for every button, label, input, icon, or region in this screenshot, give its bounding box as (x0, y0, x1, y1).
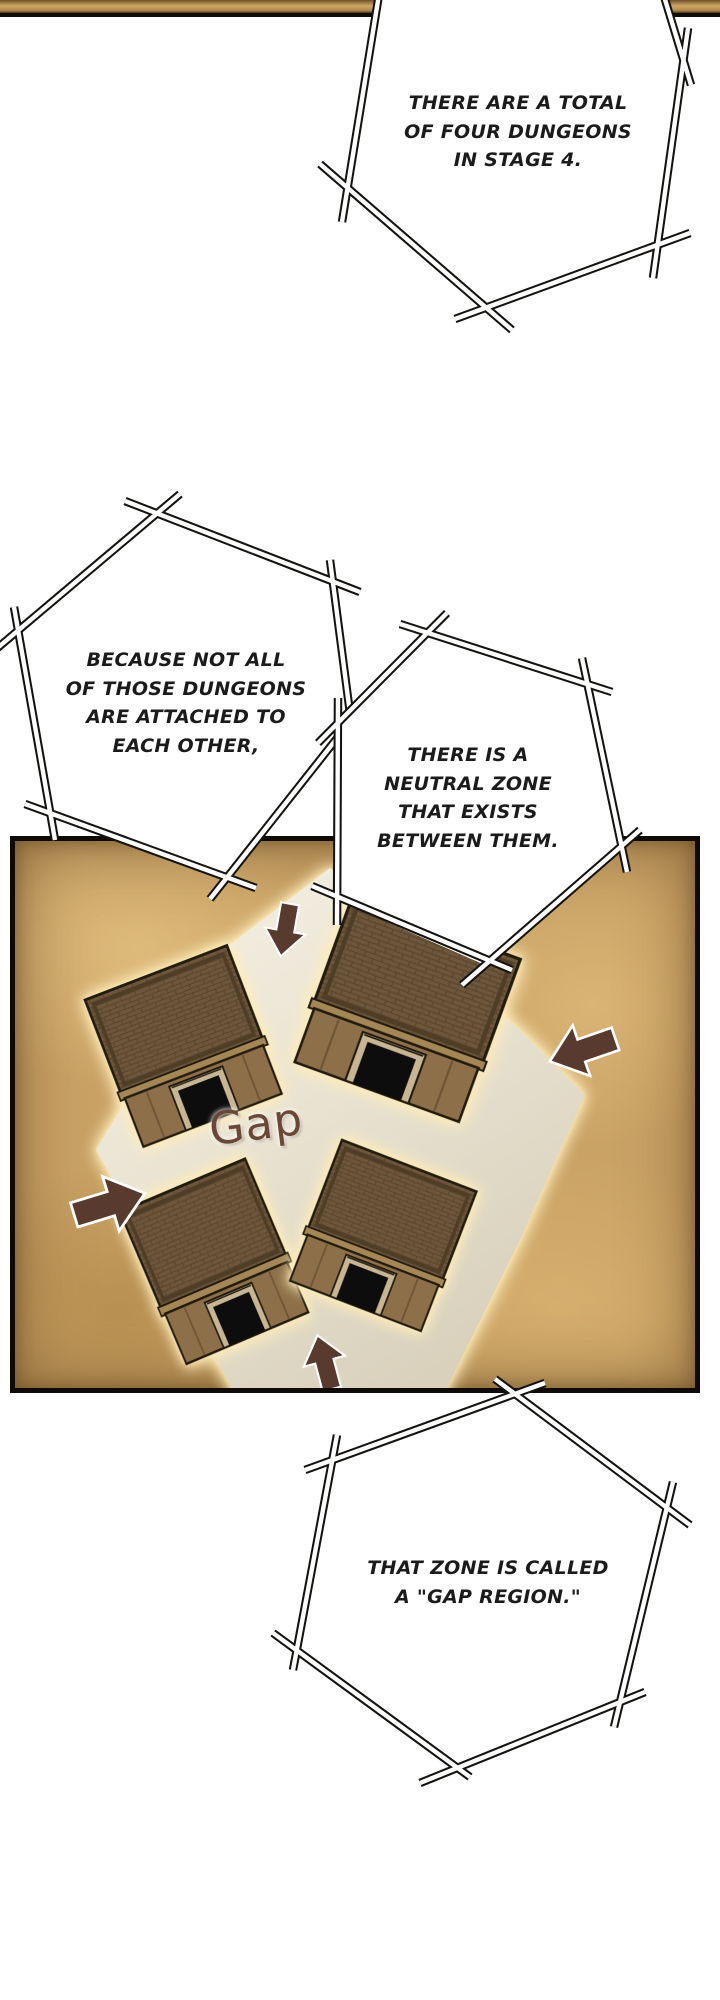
dungeon-map-panel (10, 836, 700, 1393)
previous-panel-remnant (0, 0, 720, 17)
bubble-line: THAT EXISTS (377, 798, 559, 827)
bubble-line: OF FOUR DUNGEONS (404, 118, 632, 147)
bubble-line: THERE IS A (377, 741, 559, 770)
bubble-3-text: THERE IS A NEUTRAL ZONE THAT EXISTS BETW… (377, 741, 559, 855)
bubble-line: BETWEEN THEM. (377, 827, 559, 856)
bubble-4-text: THAT ZONE IS CALLED A "GAP REGION." (367, 1554, 608, 1611)
bubble-line: BECAUSE NOT ALL (66, 646, 307, 675)
bubble-line: EACH OTHER, (66, 732, 307, 761)
bubble-line: A "GAP REGION." (367, 1583, 608, 1612)
bubble-line: NEUTRAL ZONE (377, 770, 559, 799)
bubble-line: OF THOSE DUNGEONS (66, 675, 307, 704)
comic-page: Gap THERE ARE A TOTAL OF FOUR DUNGEONS I… (0, 0, 720, 2000)
bubble-line: THAT ZONE IS CALLED (367, 1554, 608, 1583)
bubble-line: ARE ATTACHED TO (66, 703, 307, 732)
bubble-1-text: THERE ARE A TOTAL OF FOUR DUNGEONS IN ST… (404, 89, 632, 175)
bubble-line: IN STAGE 4. (404, 146, 632, 175)
bubble-2-text: BECAUSE NOT ALL OF THOSE DUNGEONS ARE AT… (66, 646, 307, 760)
bubble-line: THERE ARE A TOTAL (404, 89, 632, 118)
